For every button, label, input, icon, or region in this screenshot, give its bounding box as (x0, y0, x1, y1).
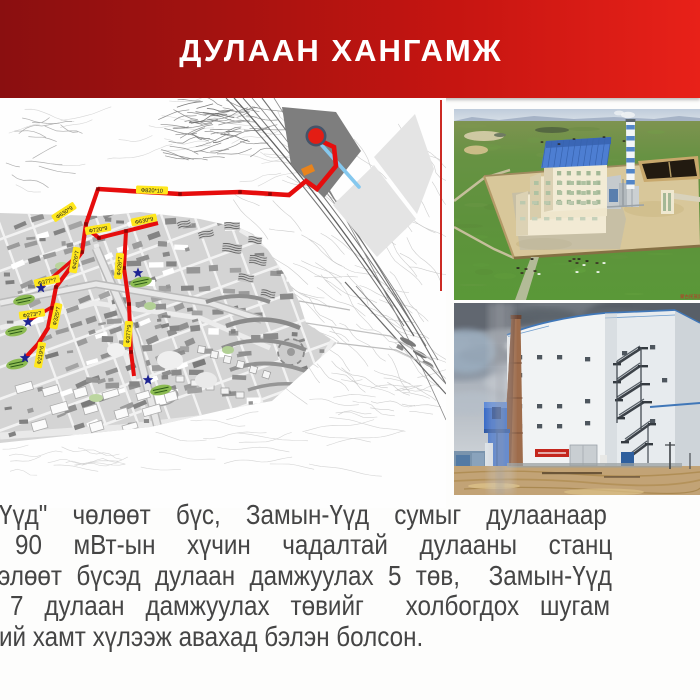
svg-text:蒙古民族建筑: 蒙古民族建筑 (680, 293, 700, 300)
svg-text:Ф820*10: Ф820*10 (141, 188, 163, 195)
